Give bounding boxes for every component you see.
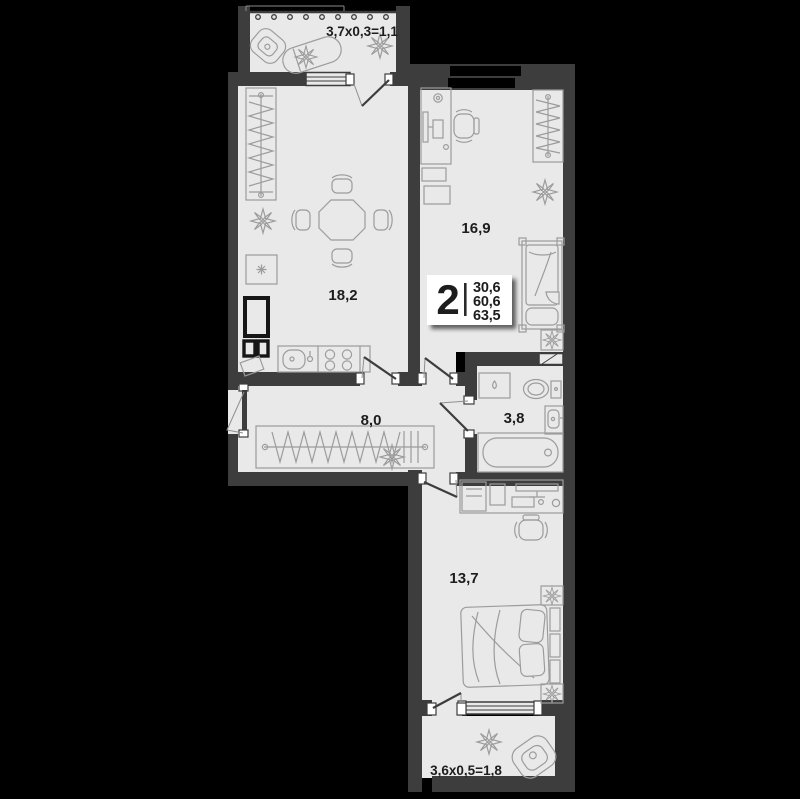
right-outer-wall xyxy=(563,64,575,792)
bedroom-top-area-label: 16,9 xyxy=(461,220,490,237)
apartment-info-badge: 2 30,6 60,6 63,5 xyxy=(427,275,516,329)
bedroom-top-floor-extension xyxy=(420,352,456,374)
bathroom-vent-hatch xyxy=(539,354,563,365)
kitchen-living-room-area-label: 18,2 xyxy=(328,287,357,304)
bedroom-bottom-window xyxy=(458,701,542,715)
total-area-value: 63,5 xyxy=(473,308,501,324)
balcony-bottom-dimension-label: 3,6x0,5=1,8 xyxy=(430,763,502,778)
hallway-floor xyxy=(238,386,465,472)
bedroom-bottom-left-wall xyxy=(408,470,422,792)
badge-divider xyxy=(464,283,467,316)
floor-plan-canvas: 3,7x0,3=1,1 18,2 16,9 8,0 3,8 13,7 3,6x0… xyxy=(0,0,800,799)
floor-areas xyxy=(228,13,563,778)
kitchen-window xyxy=(306,73,350,86)
room-count: 2 xyxy=(436,276,459,323)
balcony-top-dimension-label: 3,7x0,3=1,1 xyxy=(326,24,398,39)
kitchen-bedroom-divider-wall xyxy=(408,84,420,374)
bathroom-area-label: 3,8 xyxy=(504,410,525,427)
hallway-area-label: 8,0 xyxy=(361,412,382,429)
balcony-bottom-wall xyxy=(432,776,563,792)
bedroom-bottom-area-label: 13,7 xyxy=(449,570,478,587)
floor-plan: 3,7x0,3=1,1 18,2 16,9 8,0 3,8 13,7 3,6x0… xyxy=(0,0,800,799)
left-outer-wall xyxy=(228,72,238,390)
